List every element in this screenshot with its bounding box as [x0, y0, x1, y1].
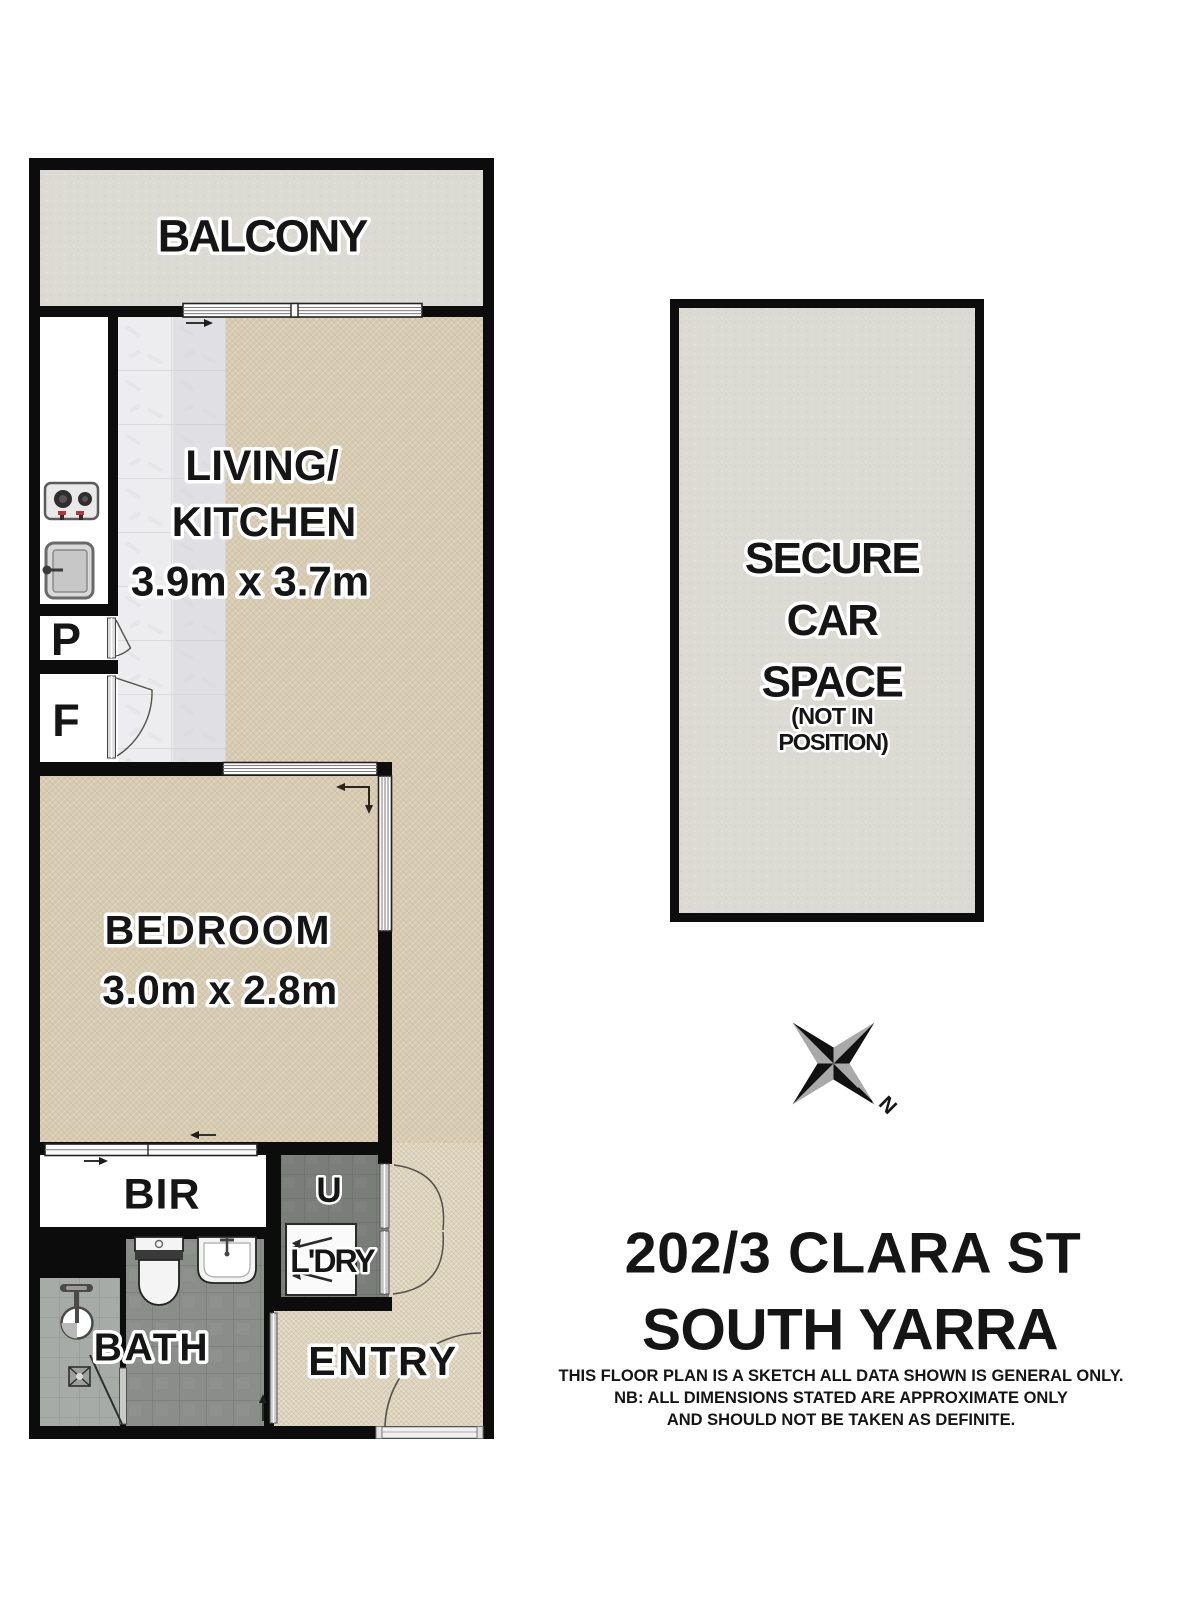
svg-text:U: U [316, 1171, 341, 1210]
svg-text:3.9m x 3.7m: 3.9m x 3.7m [131, 558, 369, 605]
svg-text:SPACE: SPACE [762, 658, 903, 707]
svg-text:LIVING/: LIVING/ [185, 443, 339, 490]
svg-text:BIR: BIR [123, 1171, 200, 1219]
svg-text:THIS FLOOR PLAN IS A SKETCH AL: THIS FLOOR PLAN IS A SKETCH ALL DATA SHO… [559, 1367, 1124, 1385]
svg-text:(NOT IN: (NOT IN [791, 703, 873, 729]
svg-text:CAR: CAR [787, 596, 879, 645]
svg-text:SOUTH YARRA: SOUTH YARRA [642, 1298, 1058, 1363]
svg-text:KITCHEN: KITCHEN [172, 498, 356, 545]
svg-text:3.0m x 2.8m: 3.0m x 2.8m [102, 967, 337, 1013]
svg-text:ENTRY: ENTRY [308, 1338, 458, 1384]
svg-text:L'DRY: L'DRY [290, 1243, 375, 1279]
svg-text:BALCONY: BALCONY [158, 211, 368, 262]
svg-text:F: F [52, 695, 80, 746]
svg-text:BEDROOM: BEDROOM [105, 907, 332, 953]
svg-text:POSITION): POSITION) [778, 729, 888, 755]
svg-text:AND SHOULD NOT BE TAKEN AS DEF: AND SHOULD NOT BE TAKEN AS DEFINITE. [667, 1411, 1015, 1429]
svg-text:NB: ALL DIMENSIONS STATED ARE: NB: ALL DIMENSIONS STATED ARE APPROXIMAT… [614, 1389, 1068, 1407]
svg-text:P: P [51, 614, 81, 665]
svg-text:SECURE: SECURE [745, 534, 920, 583]
svg-text:202/3 CLARA ST: 202/3 CLARA ST [625, 1222, 1082, 1286]
svg-text:BATH: BATH [94, 1327, 211, 1370]
